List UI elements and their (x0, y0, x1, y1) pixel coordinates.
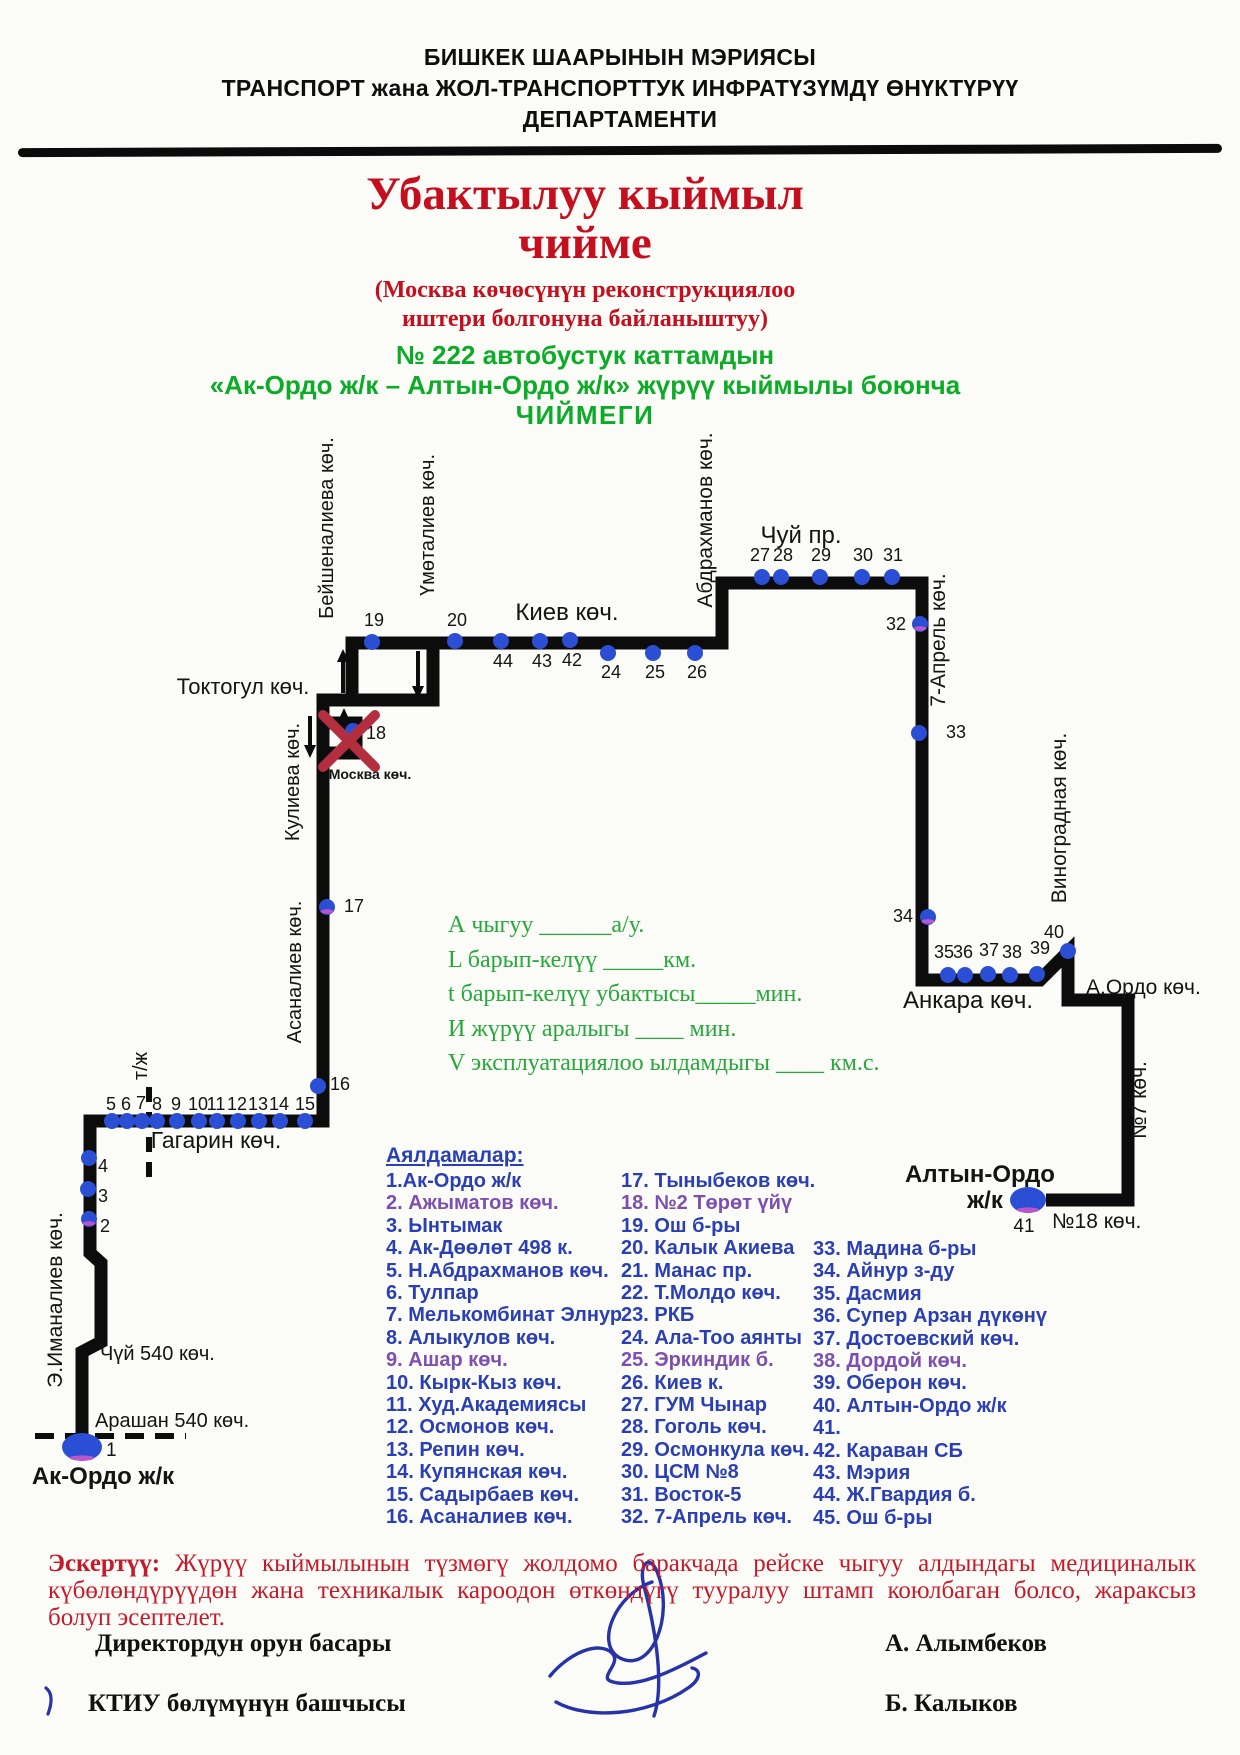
street-label: Асаналиев көч. (284, 901, 306, 1044)
document-page: БИШКЕК ШААРЫНЫН МЭРИЯСЫ ТРАНСПОРТ жана Ж… (0, 0, 1240, 1755)
stop-list-item: 18. №2 Төрөт үйү (621, 1192, 815, 1214)
stop-list-item: 16. Асаналиев көч. (386, 1506, 622, 1528)
stop-dot-16 (310, 1078, 326, 1094)
signature-name-1: А. Алымбеков (885, 1630, 1047, 1658)
stop-number-8: 8 (152, 1094, 162, 1114)
stop-number-43: 43 (532, 651, 552, 671)
stop-list-item: 28. Гоголь көч. (621, 1416, 815, 1438)
stop-list-item: 41. (813, 1417, 1047, 1439)
street-label: Киев көч. (515, 599, 618, 626)
street-label: Алтын-Ордо (905, 1161, 1055, 1188)
stop-dot-accent (83, 1221, 96, 1226)
street-label: Чүй 540 көч. (100, 1343, 215, 1365)
stop-dot-35 (940, 967, 956, 983)
stop-list-item: 37. Достоевский көч. (813, 1328, 1047, 1350)
stop-dot-5 (104, 1113, 120, 1129)
stop-list-item: 27. ГУМ Чынар (621, 1394, 815, 1416)
stop-dot-36 (957, 967, 973, 983)
param-line: V эксплуатациялоо ылдамдыгы ____ км.с. (448, 1046, 880, 1081)
stop-number-42: 42 (562, 650, 582, 670)
street-label: №7 көч. (1128, 1061, 1151, 1139)
stop-dot-7 (134, 1113, 150, 1129)
stop-list-item: 12. Осмонов көч. (386, 1416, 622, 1438)
signature-mark (556, 1668, 698, 1713)
stop-list-item: 5. Н.Абдрахманов көч. (386, 1260, 622, 1282)
terminal-accent (70, 1455, 95, 1460)
footer-note: Эскертүү: Жүрүү кыймылынын түзмөгү жолдо… (48, 1550, 1196, 1632)
street-label: А.Ордо көч. (1086, 976, 1201, 999)
stop-list-item: 43. Мэрия (813, 1462, 1047, 1484)
street-label: Токтогул көч. (177, 674, 310, 699)
stop-list-item: 6. Тулпар (386, 1282, 622, 1304)
street-label: 7-Апрель көч. (927, 573, 950, 706)
stop-number-32: 32 (886, 614, 906, 634)
stop-number-13: 13 (248, 1094, 268, 1114)
param-line: L барып-келүү _____км. (448, 943, 880, 978)
signature-comma-mark (46, 1688, 51, 1714)
stop-dot-27 (754, 569, 770, 585)
stop-list-item: 24. Ала-Тоо аянты (621, 1327, 815, 1349)
footer-note-text: Жүрүү кыймылынын түзмөгү жолдомо баракча… (48, 1550, 1196, 1631)
direction-arrow-head (304, 745, 316, 758)
stop-list-item: 45. Ош б-ры (813, 1507, 1047, 1529)
street-label: Абдрахманов көч. (694, 432, 717, 607)
stop-number-40: 40 (1044, 922, 1064, 942)
stop-number-24: 24 (601, 662, 621, 682)
stop-number-33: 33 (946, 722, 966, 742)
terminal-number-1: 1 (106, 1440, 117, 1461)
stops-list-column-1: 1.Ак-Ордо ж/к2. Ажыматов көч.3. Ынтымак4… (386, 1170, 622, 1529)
stop-list-item: 31. Восток-5 (621, 1484, 815, 1506)
stop-number-14: 14 (269, 1094, 289, 1114)
stop-number-25: 25 (645, 662, 665, 682)
terminal-number-41: 41 (1013, 1216, 1034, 1237)
street-label: Ак-Ордо ж/к (32, 1463, 175, 1490)
stop-list-item: 22. Т.Молдо көч. (621, 1282, 815, 1304)
stop-dot-26 (687, 645, 703, 661)
stop-number-10: 10 (188, 1094, 208, 1114)
stop-number-17: 17 (344, 896, 364, 916)
stop-list-item: 20. Калык Акиева (621, 1237, 815, 1259)
signature-title-2: КТИУ бөлүмүнүн башчысы (88, 1690, 406, 1718)
stop-dot-30 (854, 569, 870, 585)
stop-dot-25 (645, 645, 661, 661)
stop-list-item: 17. Тыныбеков көч. (621, 1170, 815, 1192)
stop-dot-43 (532, 633, 548, 649)
stop-list-item: 11. Худ.Академиясы (386, 1394, 622, 1416)
stop-list-item: 8. Алыкулов көч. (386, 1327, 622, 1349)
stop-number-16: 16 (330, 1074, 350, 1094)
stop-dot-19 (364, 634, 380, 650)
stop-dot-42 (562, 632, 578, 648)
stop-list-item: 9. Ашар көч. (386, 1349, 622, 1371)
stop-list-item: 44. Ж.Гвардия б. (813, 1484, 1047, 1506)
stop-number-5: 5 (106, 1094, 116, 1114)
stop-dot-33 (911, 725, 927, 741)
stop-list-item: 32. 7-Апрель көч. (621, 1506, 815, 1528)
street-label: Виноградная көч. (1048, 733, 1071, 903)
stop-list-item: 36. Супер Арзан дүкөнү (813, 1305, 1047, 1327)
signature-name-2: Б. Калыков (885, 1690, 1018, 1718)
street-label: ж/к (966, 1187, 1004, 1214)
route-parameters: А чыгуу ______а/у. L барып-келүү _____км… (448, 908, 880, 1081)
street-label: Гагарин көч. (151, 1127, 282, 1153)
street-label: т/ж (130, 1051, 152, 1080)
stop-list-item: 19. Ош б-ры (621, 1215, 815, 1237)
footer-note-label: Эскертүү: (48, 1550, 160, 1577)
stop-dot-4 (81, 1150, 97, 1166)
stop-dot-37 (980, 966, 996, 982)
stop-list-item: 25. Эркиндик б. (621, 1349, 815, 1371)
stops-list-heading: Аялдамалар: (386, 1144, 524, 1168)
stop-list-item: 13. Репин көч. (386, 1439, 622, 1461)
stop-number-9: 9 (171, 1094, 181, 1114)
street-label: Москва көч. (329, 766, 412, 782)
stops-list-column-3: 33. Мадина б-ры34. Айнур з-ду35. Дасмия3… (813, 1238, 1047, 1529)
stop-dot-accent (922, 919, 935, 924)
street-label: Э.Иманалиев көч. (44, 1212, 67, 1388)
param-line: А чыгуу ______а/у. (448, 908, 880, 943)
street-label: Арашан 540 көч. (95, 1410, 249, 1432)
stop-list-item: 42. Караван СБ (813, 1440, 1047, 1462)
stop-list-item: 38. Дордой көч. (813, 1350, 1047, 1372)
stop-number-30: 30 (853, 545, 873, 565)
stop-number-38: 38 (1002, 942, 1022, 962)
stop-number-15: 15 (295, 1094, 315, 1114)
stop-number-44: 44 (493, 651, 513, 671)
terminal-accent (1017, 1207, 1039, 1212)
stop-number-31: 31 (883, 545, 903, 565)
street-label: Үмөталиев көч. (417, 454, 439, 596)
stop-dot-31 (884, 569, 900, 585)
stop-number-12: 12 (227, 1094, 247, 1114)
stop-list-item: 35. Дасмия (813, 1283, 1047, 1305)
stop-number-2: 2 (100, 1216, 110, 1236)
stop-dot-3 (80, 1181, 96, 1197)
direction-arrow-head (338, 708, 350, 721)
stop-number-4: 4 (98, 1156, 108, 1176)
stop-list-item: 29. Осмонкула көч. (621, 1439, 815, 1461)
stop-dot-24 (600, 645, 616, 661)
stop-list-item: 30. ЦСМ №8 (621, 1461, 815, 1483)
stop-number-11: 11 (207, 1094, 226, 1114)
stop-number-36: 36 (953, 942, 973, 962)
signature-title-1: Директордун орун басары (95, 1630, 391, 1658)
street-label: Кулиева көч. (282, 723, 304, 841)
stop-list-item: 34. Айнур з-ду (813, 1260, 1047, 1282)
stop-number-37: 37 (979, 940, 999, 960)
stop-dot-20 (447, 633, 463, 649)
stop-dot-44 (493, 633, 509, 649)
stop-list-item: 3. Ынтымак (386, 1215, 622, 1237)
stop-number-3: 3 (98, 1186, 108, 1206)
stop-list-item: 10. Кырк-Кыз көч. (386, 1372, 622, 1394)
stop-number-26: 26 (687, 662, 707, 682)
stop-list-item: 33. Мадина б-ры (813, 1238, 1047, 1260)
stop-dot-6 (119, 1113, 135, 1129)
stop-list-item: 39. Оберон көч. (813, 1372, 1047, 1394)
stop-number-6: 6 (121, 1094, 131, 1114)
stop-list-item: 40. Алтын-Ордо ж/к (813, 1395, 1047, 1417)
stop-list-item: 1.Ак-Ордо ж/к (386, 1170, 622, 1192)
street-label: Анкара көч. (903, 987, 1033, 1014)
stop-list-item: 7. Мелькомбинат Элнур (386, 1304, 622, 1326)
stop-list-item: 15. Садырбаев көч. (386, 1484, 622, 1506)
stop-dot-39 (1029, 966, 1045, 982)
signature-mark (550, 1648, 706, 1683)
stop-number-35: 35 (934, 942, 954, 962)
stop-dot-38 (1002, 967, 1018, 983)
stop-list-item: 21. Манас пр. (621, 1260, 815, 1282)
stop-dot-accent (321, 909, 334, 914)
street-label: Бейшеналиева көч. (316, 437, 338, 619)
stop-number-19: 19 (364, 610, 384, 630)
stop-dot-40 (1060, 943, 1076, 959)
stop-dot-28 (773, 569, 789, 585)
stop-number-7: 7 (136, 1093, 146, 1113)
stop-dot-accent (914, 626, 927, 631)
stop-number-20: 20 (447, 610, 467, 630)
stop-dot-29 (812, 569, 828, 585)
stop-list-item: 4. Ак-Дөөлөт 498 к. (386, 1237, 622, 1259)
stops-list-column-2: 17. Тыныбеков көч.18. №2 Төрөт үйү19. Ош… (621, 1170, 815, 1529)
stop-list-item: 23. РКБ (621, 1304, 815, 1326)
param-line: t барып-келүү убактысы_____мин. (448, 977, 880, 1012)
stop-list-item: 26. Киев к. (621, 1372, 815, 1394)
street-label: Чуй пр. (760, 522, 841, 549)
stop-number-34: 34 (893, 906, 913, 926)
stop-dot-15 (297, 1113, 313, 1129)
stop-list-item: 14. Купянская көч. (386, 1461, 622, 1483)
street-label: №18 көч. (1052, 1210, 1141, 1233)
stop-list-item: 2. Ажыматов көч. (386, 1192, 622, 1214)
param-line: И жүрүү аралыгы ____ мин. (448, 1012, 880, 1047)
